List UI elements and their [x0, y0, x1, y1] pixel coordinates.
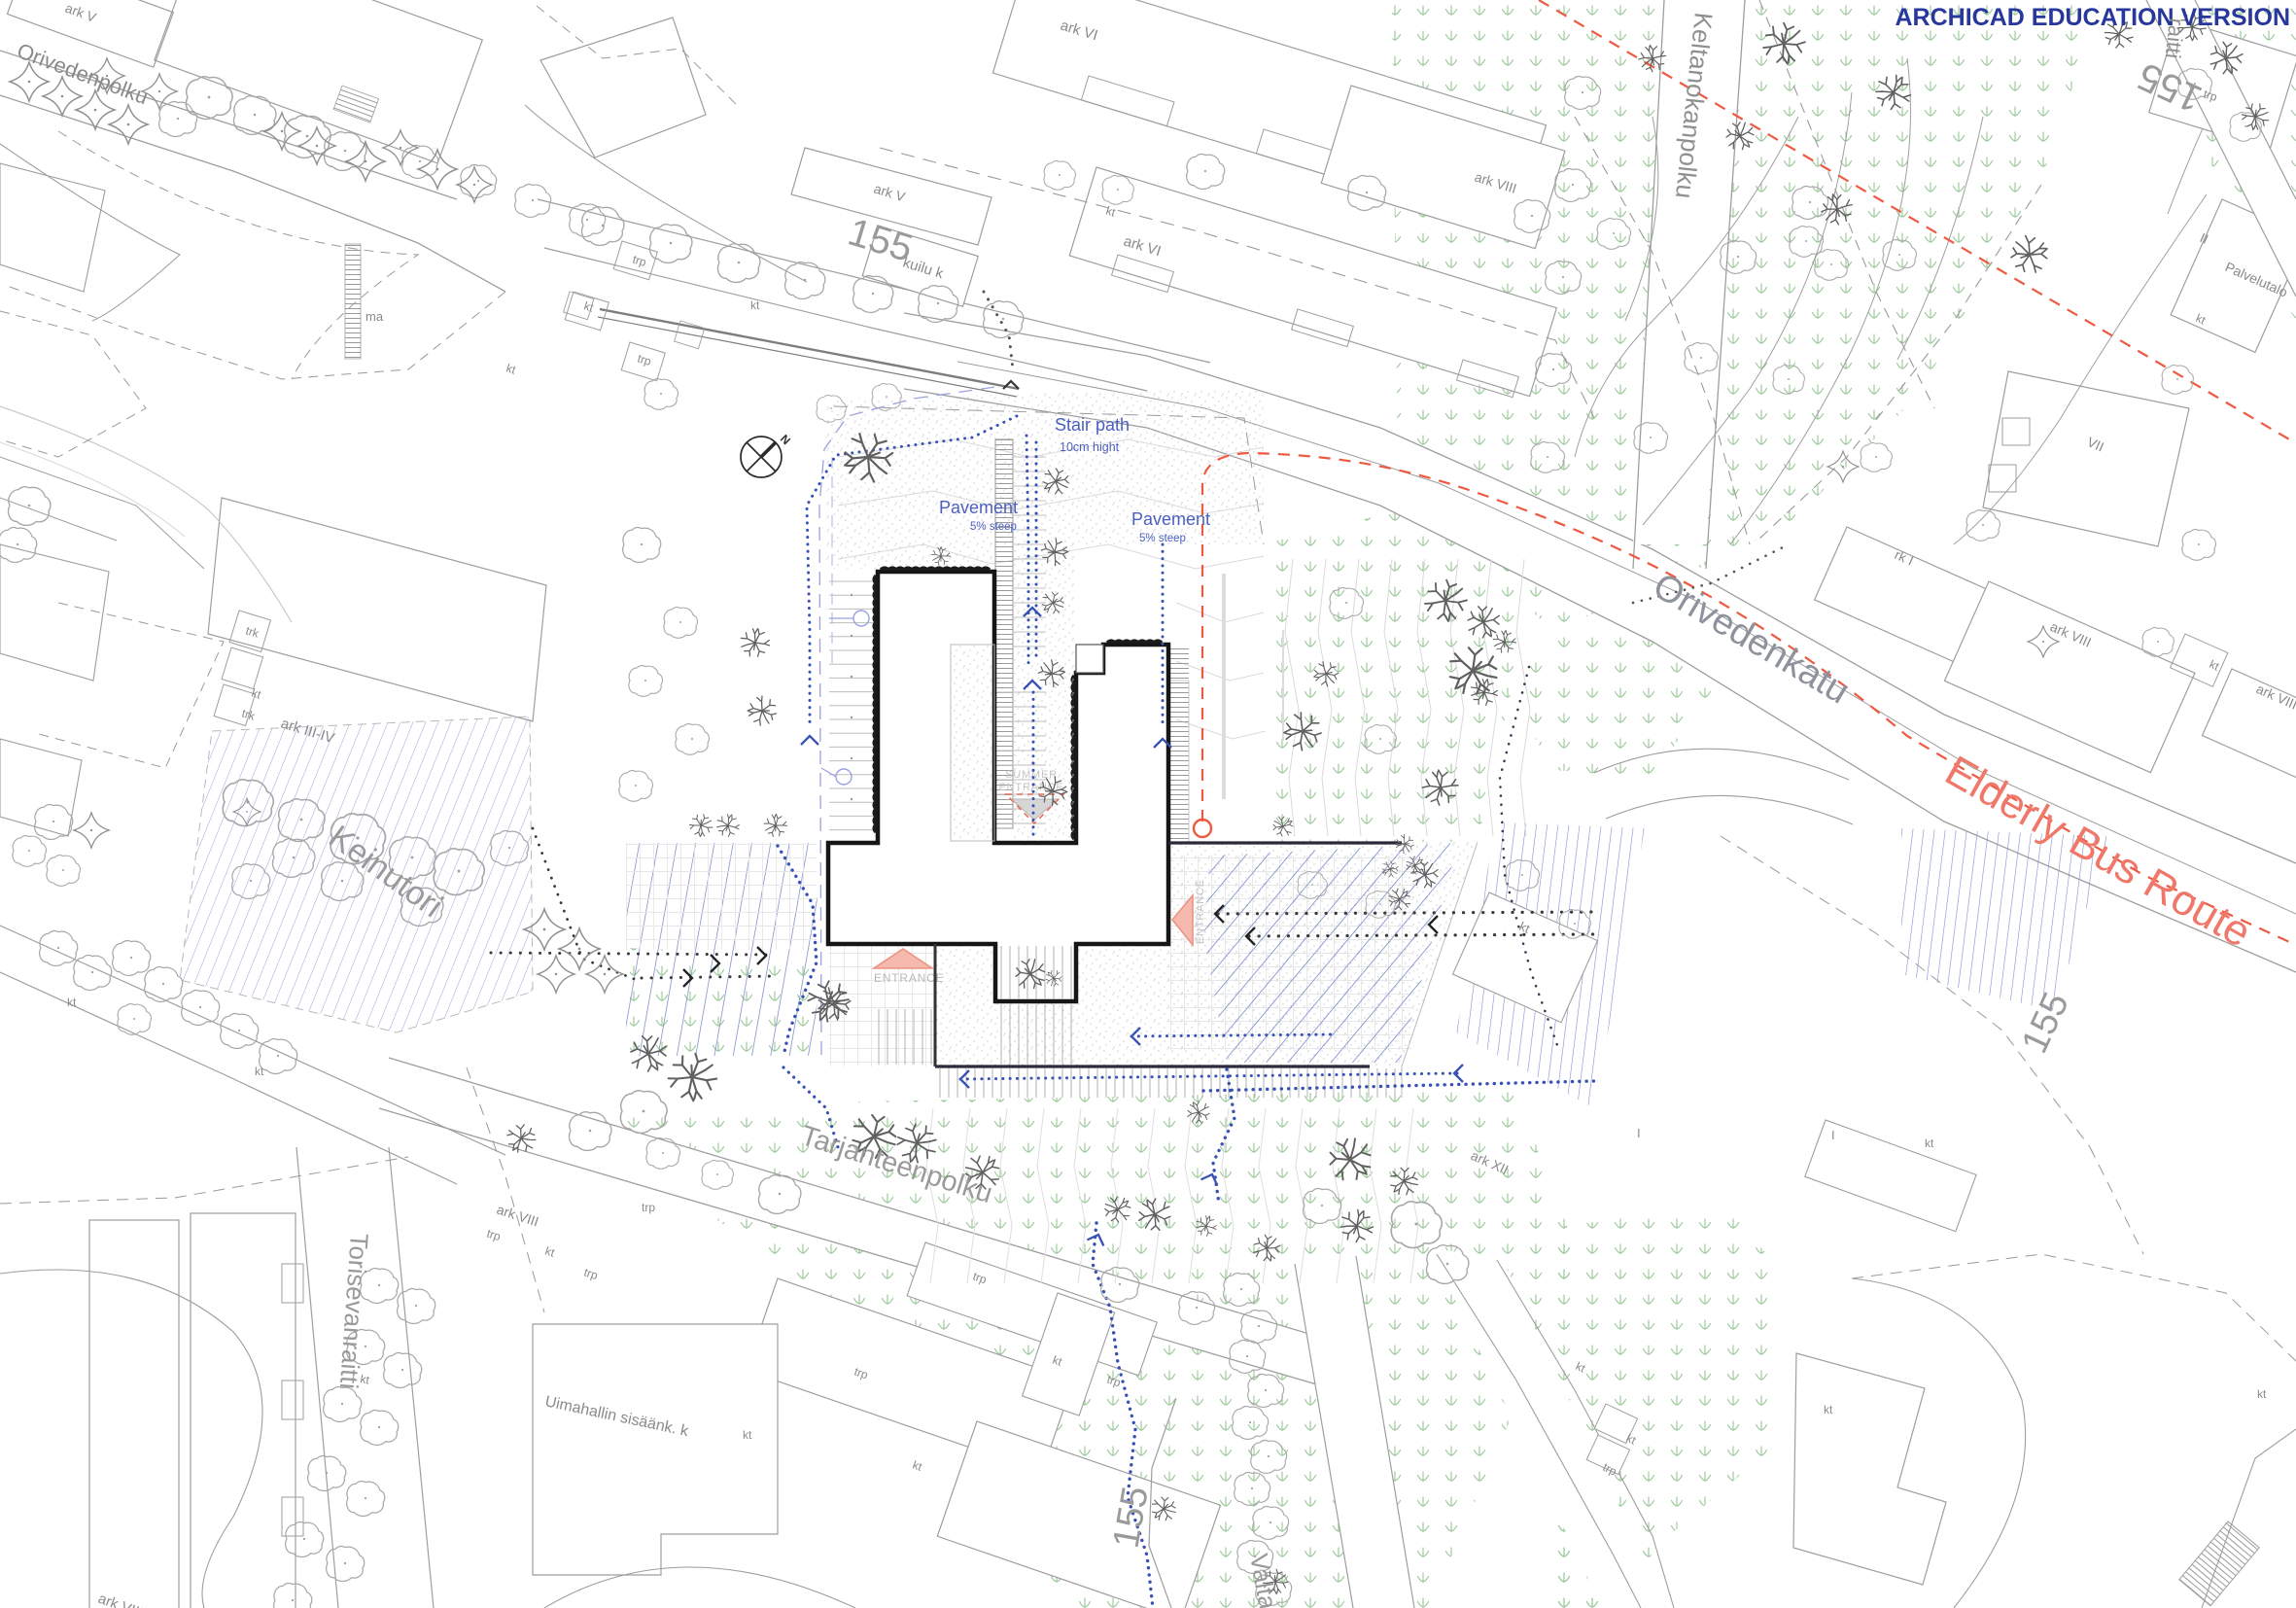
- svg-text:kt: kt: [911, 1458, 924, 1474]
- svg-text:ark V: ark V: [63, 0, 99, 25]
- svg-text:kt: kt: [255, 1065, 264, 1078]
- svg-text:ENTRANCE: ENTRANCE: [1195, 879, 1206, 944]
- svg-text:kt: kt: [2257, 1387, 2267, 1401]
- svg-text:ARCHICAD EDUCATION VERSION: ARCHICAD EDUCATION VERSION: [1896, 4, 2291, 31]
- svg-text:kt: kt: [67, 996, 77, 1009]
- svg-text:trp: trp: [631, 252, 648, 269]
- svg-text:VII: VII: [2085, 434, 2106, 455]
- svg-text:ark VIII: ark VIII: [96, 1591, 145, 1608]
- svg-text:10cm hight: 10cm hight: [1060, 440, 1120, 454]
- svg-text:kt: kt: [504, 361, 518, 376]
- svg-text:trp: trp: [642, 1201, 655, 1214]
- svg-text:kt: kt: [1824, 1403, 1833, 1416]
- svg-text:kt: kt: [1925, 1136, 1934, 1150]
- svg-text:ark VIII: ark VIII: [495, 1202, 540, 1230]
- svg-text:trk: trk: [240, 706, 258, 723]
- svg-text:N: N: [778, 432, 793, 447]
- svg-text:I: I: [1637, 1126, 1641, 1140]
- svg-text:5% steep: 5% steep: [1139, 533, 1186, 544]
- svg-text:trk: trk: [244, 623, 261, 641]
- svg-text:ark VIII: ark VIII: [2254, 681, 2296, 713]
- svg-text:Pavement: Pavement: [1131, 509, 1210, 529]
- svg-text:Pavement: Pavement: [939, 498, 1018, 517]
- svg-text:trp: trp: [485, 1227, 503, 1244]
- svg-text:ma: ma: [365, 309, 384, 324]
- svg-text:I: I: [1831, 1128, 1835, 1142]
- svg-text:Stair path: Stair path: [1055, 415, 1130, 435]
- svg-text:trp: trp: [636, 351, 653, 368]
- svg-text:SUMMER: SUMMER: [1005, 769, 1058, 781]
- svg-text:5% steep: 5% steep: [970, 521, 1017, 533]
- svg-text:raitti: raitti: [2161, 17, 2189, 59]
- svg-text:kt: kt: [582, 298, 596, 314]
- svg-text:kt: kt: [750, 298, 760, 312]
- svg-text:kt: kt: [543, 1244, 557, 1260]
- svg-text:trp: trp: [582, 1266, 600, 1283]
- svg-text:kt: kt: [743, 1428, 752, 1442]
